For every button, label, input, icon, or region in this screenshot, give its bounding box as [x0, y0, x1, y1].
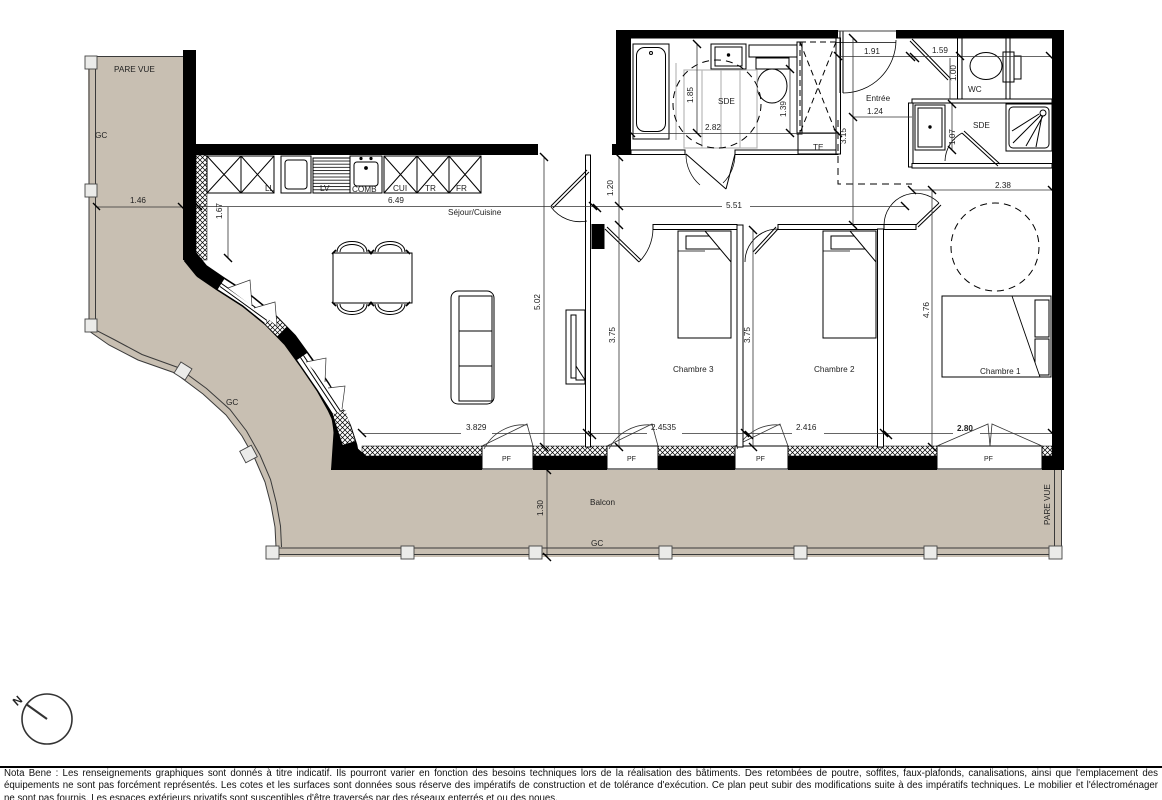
svg-text:1.24: 1.24 [867, 107, 883, 116]
svg-text:Chambre 1: Chambre 1 [980, 367, 1021, 376]
svg-text:GC: GC [95, 131, 107, 140]
svg-text:GC: GC [591, 539, 603, 548]
svg-text:Entrée: Entrée [866, 94, 891, 103]
svg-text:Balcon: Balcon [590, 498, 615, 507]
svg-text:PF: PF [984, 456, 993, 463]
svg-text:3.75: 3.75 [743, 327, 752, 343]
svg-text:1.20: 1.20 [606, 180, 615, 196]
svg-text:PARE VUE: PARE VUE [114, 65, 155, 74]
svg-text:5.51: 5.51 [726, 201, 742, 210]
svg-text:SDE: SDE [718, 97, 735, 106]
svg-text:PARE VUE: PARE VUE [1043, 484, 1052, 525]
svg-text:5.02: 5.02 [533, 294, 542, 310]
svg-text:TE: TE [813, 143, 824, 152]
svg-text:Séjour/Cuisine: Séjour/Cuisine [448, 208, 502, 217]
svg-text:PF: PF [627, 456, 636, 463]
svg-text:TR: TR [425, 184, 436, 193]
svg-text:1.59: 1.59 [932, 46, 948, 55]
svg-text:LV: LV [320, 184, 330, 193]
svg-text:3.15: 3.15 [839, 128, 848, 144]
svg-text:N: N [11, 694, 25, 708]
svg-text:1.00: 1.00 [949, 65, 958, 81]
svg-text:CUI: CUI [393, 184, 407, 193]
svg-text:1.85: 1.85 [686, 87, 695, 103]
svg-text:3.75: 3.75 [608, 327, 617, 343]
svg-text:PF: PF [502, 456, 511, 463]
svg-text:2.4535: 2.4535 [651, 423, 676, 432]
svg-text:1.39: 1.39 [779, 101, 788, 117]
svg-text:2.38: 2.38 [995, 181, 1011, 190]
svg-text:LL: LL [265, 184, 275, 193]
svg-text:6.49: 6.49 [388, 196, 404, 205]
svg-text:COMB: COMB [352, 185, 377, 194]
svg-text:SDE: SDE [973, 121, 990, 130]
svg-text:4.76: 4.76 [922, 302, 931, 318]
svg-text:PF: PF [756, 456, 765, 463]
svg-text:1.46: 1.46 [130, 196, 146, 205]
svg-text:FR: FR [456, 184, 467, 193]
svg-text:WC: WC [968, 85, 982, 94]
svg-text:Chambre 3: Chambre 3 [673, 365, 714, 374]
svg-text:2.80: 2.80 [957, 424, 973, 433]
svg-text:GC: GC [226, 398, 238, 407]
svg-text:2.82: 2.82 [705, 123, 721, 132]
svg-text:1.07: 1.07 [948, 129, 957, 145]
svg-text:Chambre 2: Chambre 2 [814, 365, 855, 374]
svg-text:1.67: 1.67 [215, 203, 224, 219]
svg-text:3.829: 3.829 [466, 423, 487, 432]
svg-text:1.91: 1.91 [864, 47, 880, 56]
svg-text:2.416: 2.416 [796, 423, 817, 432]
svg-text:1.30: 1.30 [536, 500, 545, 516]
